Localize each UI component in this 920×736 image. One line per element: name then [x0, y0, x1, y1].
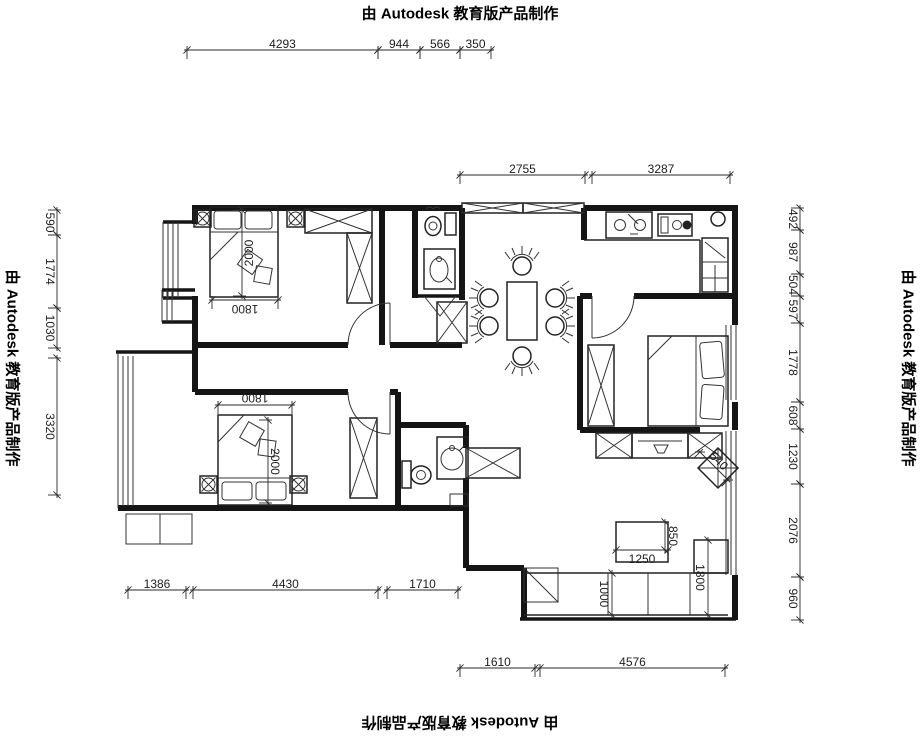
dim-label: 2000 [242, 239, 256, 266]
dimension: 1610 [456, 655, 538, 677]
bay-window-bedroom2 [118, 352, 192, 544]
doors-layer [348, 296, 634, 602]
dim-label: 1000 [597, 581, 611, 608]
dimension: 2076 [786, 480, 804, 580]
dim-label: 2076 [786, 517, 800, 544]
dimension: 608 [786, 398, 804, 432]
dimension: 1250 [612, 546, 671, 566]
toilet-bathroom1 [425, 207, 456, 236]
dimension: 987 [786, 226, 804, 277]
dim-label: 1030 [43, 315, 57, 342]
dim-label: 2755 [509, 162, 536, 176]
dim-label: 3320 [43, 413, 57, 440]
dining-chairs [469, 246, 575, 376]
watermarks-layer: 由 Autodesk 教育版产品制作由 Autodesk 教育版产品制作由 Au… [4, 5, 918, 732]
dimension: 3287 [588, 162, 733, 184]
dim-label: 504 [786, 275, 800, 295]
dim-label: 1800 [693, 564, 707, 591]
dim-label: 1774 [43, 258, 57, 285]
dim-label: 566 [430, 37, 450, 51]
kitchen-sink [606, 212, 652, 238]
dim-label: 850 [666, 526, 680, 546]
door-bedroom3 [592, 296, 634, 338]
dim-label: 1386 [144, 577, 171, 591]
wardrobe-bedroom1 [305, 209, 372, 303]
dim-label: 1778 [786, 349, 800, 376]
dimension: 566 [416, 37, 463, 59]
dimension: 1000 [597, 569, 616, 618]
kitchen-counter [584, 240, 700, 294]
dimension: 597 [786, 292, 804, 326]
dim-label: 350 [465, 37, 485, 51]
dim-label: 4293 [269, 37, 296, 51]
dimension: 350 [456, 37, 494, 59]
dimension: 1030 [43, 304, 61, 351]
dim-label: 4430 [272, 577, 299, 591]
furniture-layer [210, 207, 738, 615]
bed-bedroom3 [648, 336, 728, 426]
dimension: 2755 [456, 162, 588, 184]
dimension: 4576 [536, 655, 728, 677]
duct-shaft-1 [437, 302, 467, 343]
dim-label: 944 [389, 37, 409, 51]
dimension: 4430 [189, 577, 381, 599]
dim-label: 540 [707, 449, 731, 473]
door-bedroom2 [348, 392, 390, 434]
wardrobe-bedroom2 [350, 418, 377, 498]
fridge-icon [702, 238, 728, 292]
dimension: 1386 [124, 577, 189, 599]
dim-label: 1250 [629, 552, 656, 566]
dim-label: 960 [786, 588, 800, 608]
dimension: 944 [374, 37, 423, 59]
dimension: 960 [786, 573, 804, 623]
watermark-right: 由 Autodesk 教育版产品制作 [900, 270, 918, 467]
dining-table [507, 282, 537, 340]
dim-label: 1230 [786, 443, 800, 470]
floorplan-canvas: 4293944566350275532875901774103033204929… [0, 0, 920, 736]
dimension: 590 [43, 206, 61, 238]
dim-label: 597 [786, 299, 800, 319]
duct-shaft-2 [466, 448, 520, 478]
dim-label: 2000 [268, 448, 282, 475]
window-band-top [462, 203, 584, 213]
dim-label: 590 [43, 212, 57, 232]
dimension: 504 [786, 270, 804, 299]
wardrobe-bedroom3 [588, 345, 614, 426]
kitchen-stove [658, 214, 692, 236]
basin-bathroom1 [424, 249, 455, 289]
watermark-top: 由 Autodesk 教育版产品制作 [362, 5, 559, 23]
dimension: 4293 [183, 37, 381, 59]
dim-label: 1800 [241, 391, 268, 405]
watermark-left: 由 Autodesk 教育版产品制作 [4, 270, 22, 467]
toilet-bathroom2 [402, 461, 431, 488]
dim-label: 4576 [619, 655, 646, 669]
dimension: 1230 [786, 425, 804, 487]
dim-label: 1800 [231, 302, 258, 316]
dim-label: 608 [786, 405, 800, 425]
dim-label: 987 [786, 242, 800, 262]
dimension: 1800 [693, 536, 712, 618]
dimension: 1774 [43, 231, 61, 311]
dim-label: 3287 [648, 162, 675, 176]
dimension: 1778 [786, 319, 804, 405]
dim-label: 1610 [484, 655, 511, 669]
dim-label: 492 [786, 209, 800, 229]
dim-label: 1710 [409, 577, 436, 591]
floorplan-page: 4293944566350275532875901774103033204929… [0, 0, 920, 736]
dimension: 1710 [383, 577, 461, 599]
dimension: 492 [786, 204, 804, 233]
floor-drain-icon [711, 212, 725, 226]
bay-window-bedroom1 [163, 222, 195, 298]
tv-cabinet [596, 433, 722, 458]
watermark-bottom: 由 Autodesk 教育版产品制作 [362, 714, 559, 732]
dimension: 3320 [43, 354, 61, 498]
